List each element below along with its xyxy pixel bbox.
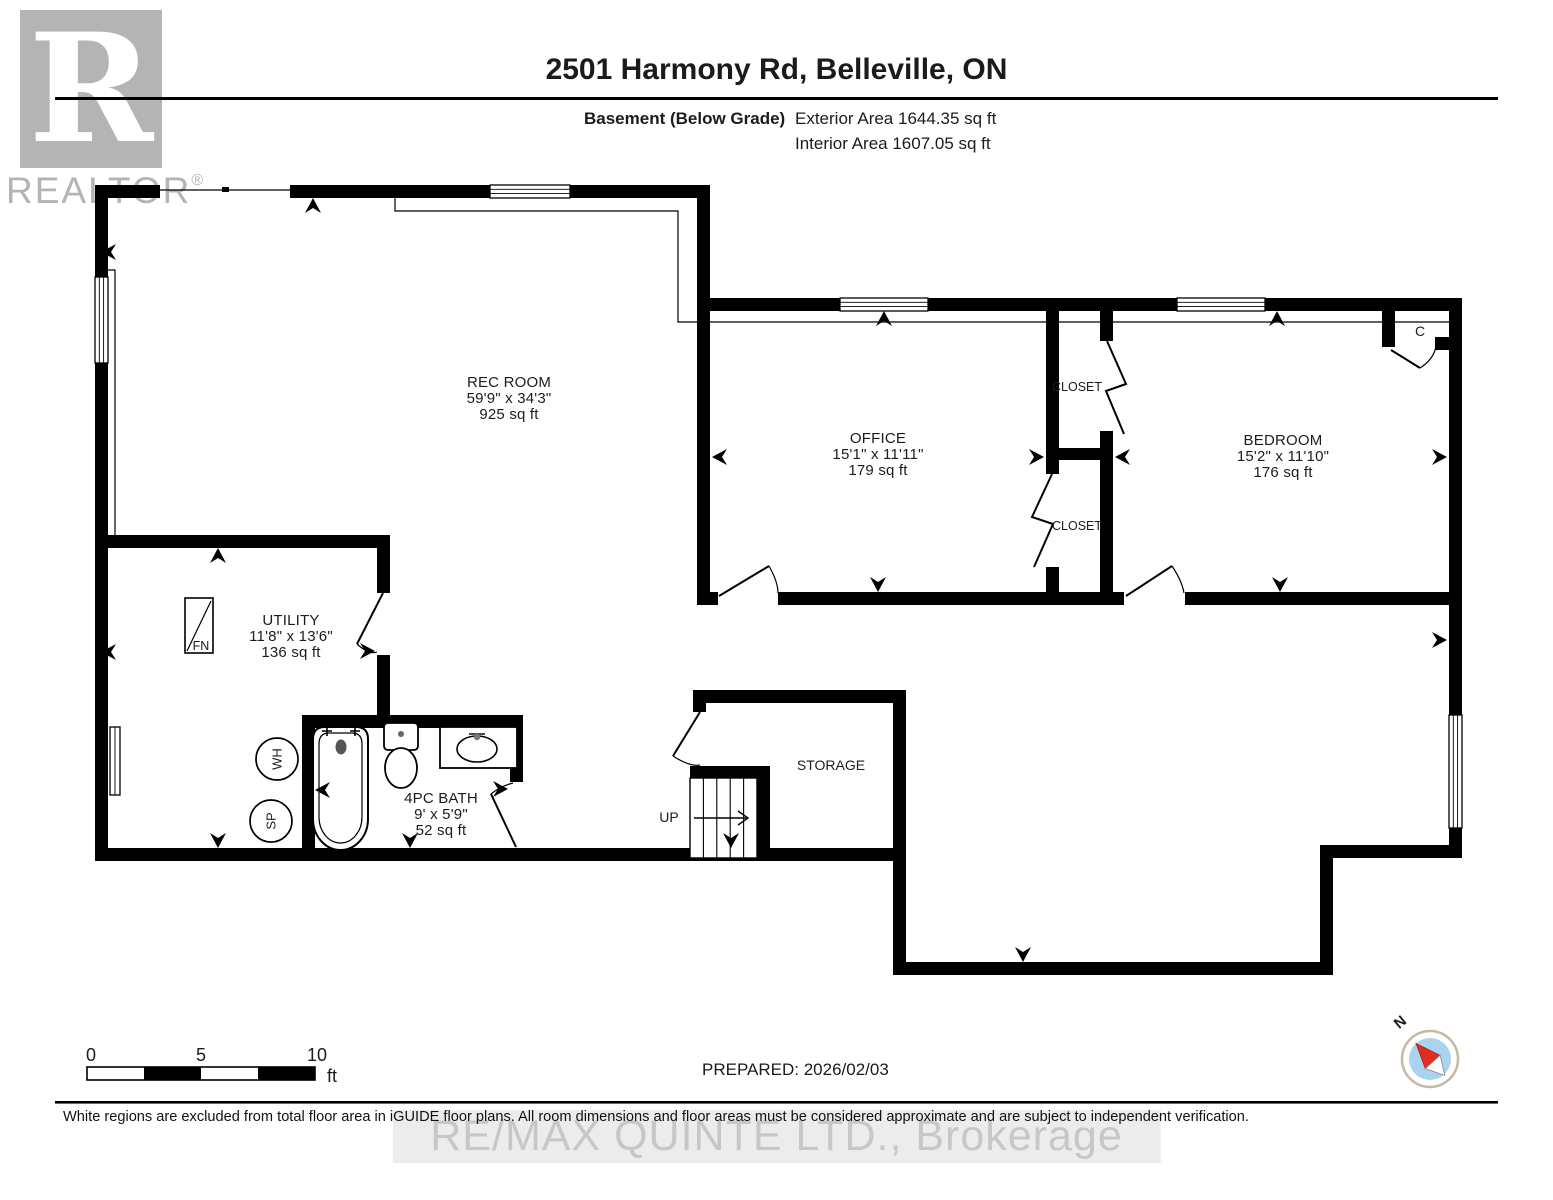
windows	[95, 185, 1462, 828]
up-label: UP	[659, 809, 678, 825]
closet-c-label: C	[1415, 323, 1425, 339]
door-leaf-bedroom	[1126, 566, 1172, 596]
closet-lower-label: CLOSET	[1052, 519, 1102, 533]
bifold-door-closet-upper	[1106, 341, 1126, 434]
closet-upper-label: CLOSET	[1052, 380, 1102, 394]
scale-unit: ft	[327, 1066, 337, 1087]
floor-plan-page: R REALTOR® RE/MAX QUINTE LTD., Brokerage	[0, 0, 1553, 1200]
compass-icon	[1402, 1031, 1458, 1087]
door-leaf-bath	[491, 794, 516, 847]
scale-tick-5: 5	[196, 1045, 206, 1066]
page-title: 2501 Harmony Rd, Belleville, ON	[0, 53, 1553, 87]
room-label-rec-room: REC ROOM 59'9" x 34'3" 925 sq ft	[467, 375, 552, 423]
room-label-storage: STORAGE	[797, 757, 865, 773]
window-left-upper	[95, 277, 108, 363]
interior-area: Interior Area 1607.05 sq ft	[795, 134, 991, 154]
door-arc-closet-c	[1420, 346, 1436, 368]
sump-pump-label: SP	[264, 812, 279, 829]
tub-drain-icon	[336, 740, 347, 755]
header-divider	[55, 97, 1498, 100]
bifold-door-closet-lower	[1032, 474, 1053, 567]
prepared-date: PREPARED: 2026/02/03	[702, 1060, 889, 1080]
door-arc-office	[769, 566, 778, 593]
stairs-up	[690, 778, 757, 858]
floor-plan-drawing	[0, 0, 1553, 1200]
door-leaf-closet-c	[1391, 350, 1420, 368]
scale-bar	[87, 1067, 315, 1080]
water-heater-label: WH	[270, 748, 285, 770]
floor-label: Basement (Below Grade)	[584, 109, 785, 129]
door-arc-storage	[673, 756, 700, 765]
sink-vanity	[440, 727, 517, 768]
scale-tick-10: 10	[307, 1045, 327, 1066]
footer-divider	[55, 1101, 1498, 1104]
door-leaf-office	[719, 566, 769, 596]
disclaimer-text: White regions are excluded from total fl…	[63, 1109, 1249, 1125]
scale-tick-0: 0	[86, 1045, 96, 1066]
door-arc-bedroom	[1172, 566, 1184, 593]
window-rec-room-top	[490, 185, 570, 198]
sink-faucet-icon	[474, 734, 480, 740]
wall-tick	[222, 187, 229, 192]
window-office-top	[840, 298, 928, 311]
room-label-office: OFFICE 15'1" x 11'11" 179 sq ft	[832, 431, 923, 479]
bulkhead-lines	[101, 190, 1449, 535]
room-label-bath: 4PC BATH 9' x 5'9" 52 sq ft	[404, 791, 478, 839]
furnace-label: FN	[193, 639, 210, 653]
room-label-utility: UTILITY 11'8" x 13'6" 136 sq ft	[249, 613, 333, 661]
door-leaf-storage	[673, 712, 700, 756]
exterior-area: Exterior Area 1644.35 sq ft	[795, 109, 996, 129]
room-label-bedroom: BEDROOM 15'2" x 11'10" 176 sq ft	[1237, 433, 1329, 481]
door-leaf-utility	[357, 593, 383, 644]
window-bedroom-top	[1177, 298, 1265, 311]
window-right	[1449, 715, 1462, 828]
toilet	[384, 723, 418, 788]
